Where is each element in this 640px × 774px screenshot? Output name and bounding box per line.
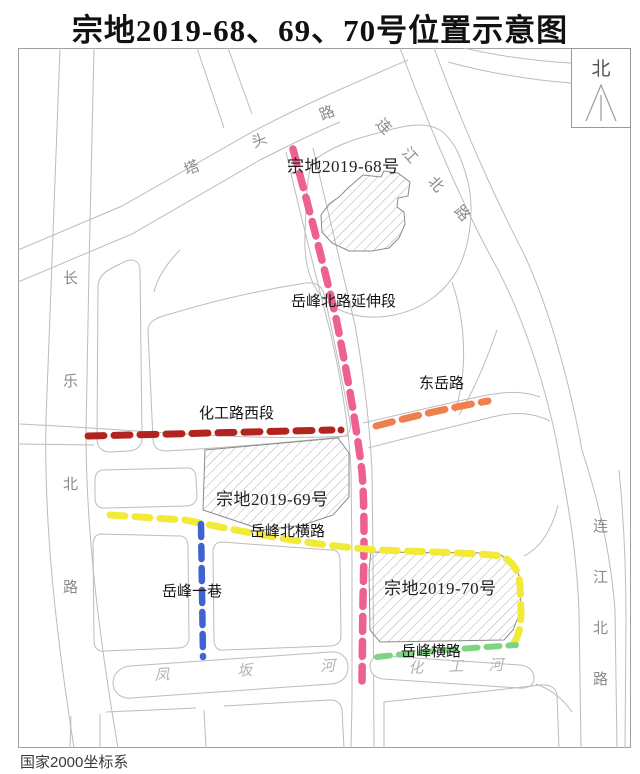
parcel-69-label: 宗地2019-69号	[216, 491, 329, 508]
road-line-topmini-a	[197, 48, 224, 128]
planned-road-huagong-west	[88, 430, 332, 436]
road-label-changle-north: 长乐北路	[62, 270, 77, 682]
block-bottom-e	[224, 700, 344, 748]
parcel-69-shape	[203, 438, 349, 530]
road-label-lianjiang-north-right: 连江北路	[592, 518, 607, 722]
road-label-huagong-west: 化工路西段	[199, 406, 274, 421]
location-map-page: 宗地2019-68、69、70号位置示意图 北 宗地2019-68号 宗地201…	[0, 0, 640, 774]
road-label-yuefeng-lane1: 岳峰一巷	[162, 584, 222, 599]
block-bottom-f	[384, 685, 559, 748]
block-lane-right	[213, 542, 341, 650]
road-label-yuefeng-cross: 岳峰横路	[401, 644, 461, 659]
north-arrow-box: 北	[571, 48, 631, 128]
road-label-yuefeng-north-ext: 岳峰北路延伸段	[291, 294, 396, 309]
block-west-small	[97, 260, 142, 452]
north-arrow-icon	[572, 75, 630, 125]
road-network	[18, 48, 626, 748]
road-label-dongyue: 东岳路	[419, 376, 464, 391]
road-line-east-sliver	[619, 470, 626, 748]
parcel-68-shape	[321, 171, 410, 251]
road-label-yuefeng-north-cross: 岳峰北横路	[250, 524, 325, 539]
road-line-ne-parcel70	[524, 505, 558, 556]
road-line-horiz-lower	[18, 444, 94, 445]
road-line-topright-b	[464, 48, 571, 63]
road-line-changle-right	[86, 48, 118, 748]
block-bottom-d	[204, 710, 206, 748]
block-strip-midleft	[95, 468, 197, 508]
parcel-68-label: 宗地2019-68号	[287, 158, 400, 175]
page-title: 宗地2019-68、69、70号位置示意图	[0, 5, 640, 50]
road-line-dongyue-lower	[368, 414, 550, 448]
coordinate-system-note: 国家2000坐标系	[20, 751, 128, 772]
block-bottom-c	[106, 708, 196, 712]
road-line-lianjiang-right	[434, 48, 617, 748]
road-line-connector	[154, 250, 180, 292]
planned-road-huagong-west-enddot	[338, 427, 345, 434]
parcel-70-label: 宗地2019-70号	[384, 580, 497, 597]
river-label-huagong: 化工河	[408, 657, 528, 676]
road-line-topmini-b	[228, 48, 252, 114]
road-line-topright-a	[448, 62, 571, 83]
road-line-se-of-blob	[452, 282, 464, 412]
